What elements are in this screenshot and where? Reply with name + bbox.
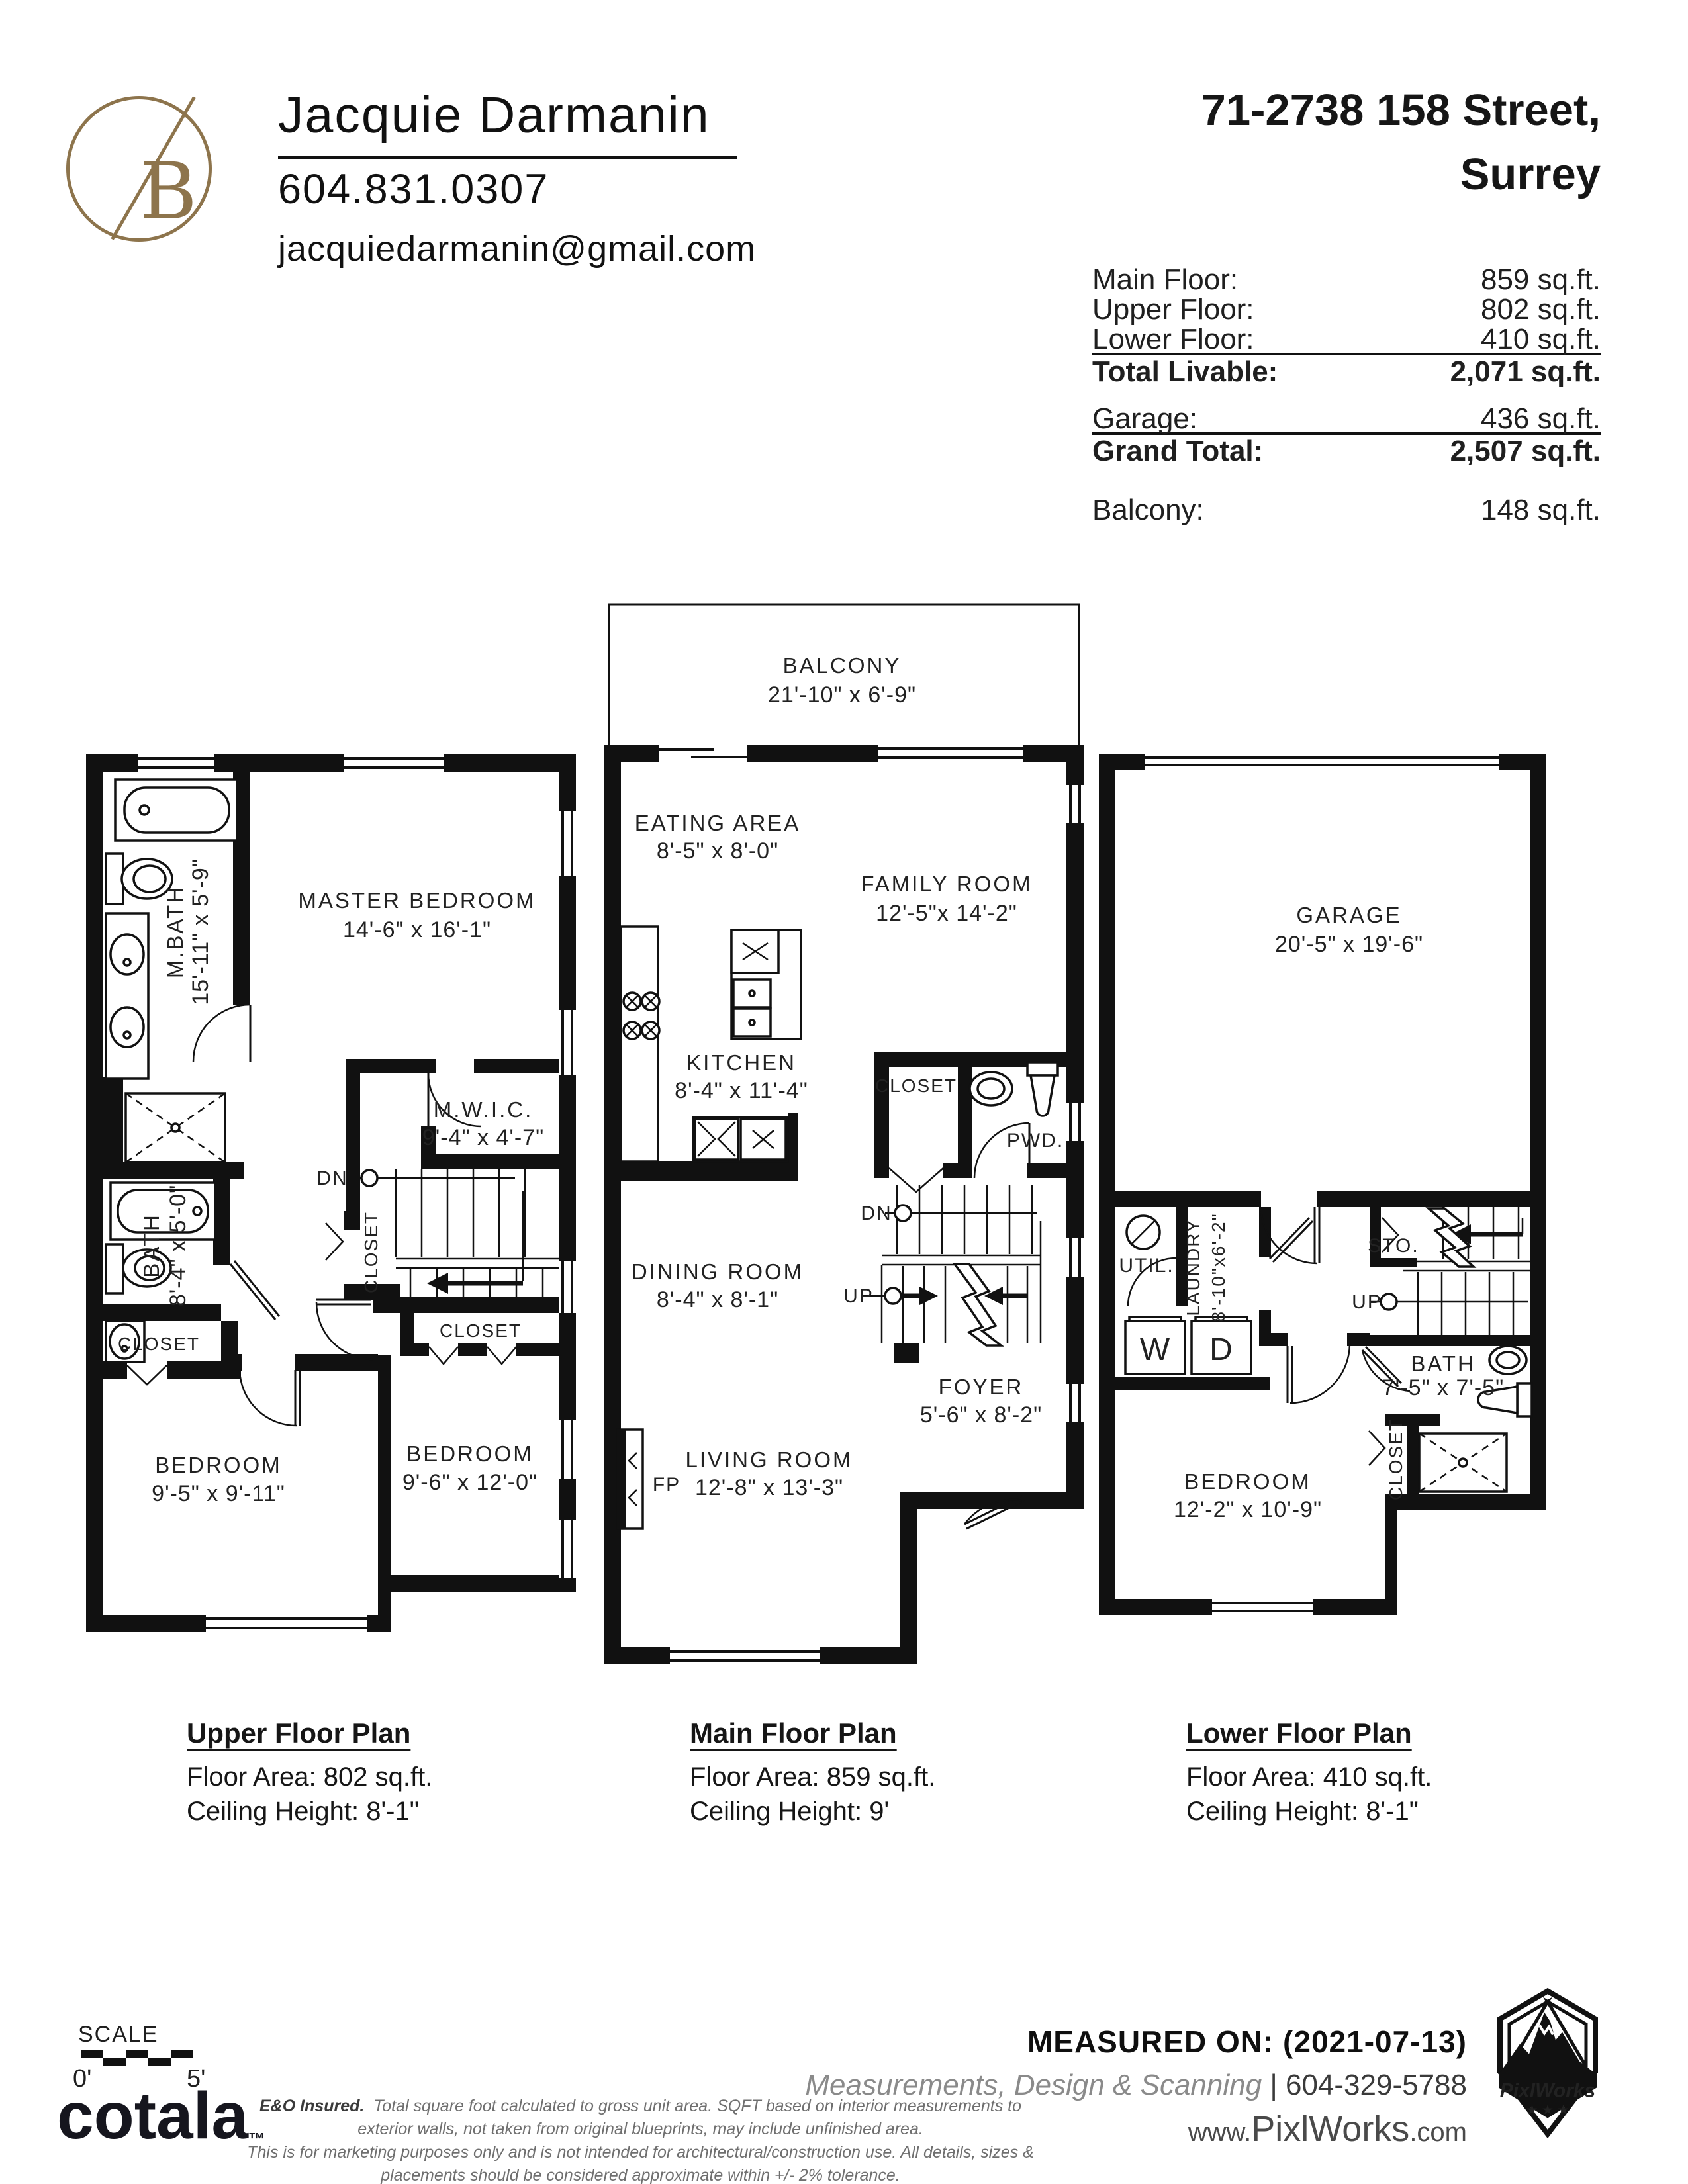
sink-icon [970, 1072, 1012, 1105]
room-dims-living: 12'-8" x 13'-3" [695, 1475, 843, 1500]
stair-label-dn: DN [316, 1167, 348, 1189]
window [559, 1416, 576, 1482]
stair-arrow-icon [919, 1287, 938, 1305]
caption-ceiling: Ceiling Height: 9' [690, 1794, 935, 1829]
room-label-laundry: LAUNDRY [1183, 1218, 1203, 1316]
main-floor-plan: BALCONY 21'-10" x 6'-9" EATING AREA 8'-5… [604, 599, 1084, 1668]
room-label-closet: CLOSET [875, 1075, 957, 1096]
disclaimer-bold: E&O Insured. [259, 2097, 364, 2115]
value: 802 sq.ft. [1481, 293, 1601, 326]
room-dims-bedroom: 12'-2" x 10'-9" [1174, 1497, 1322, 1522]
services-line: Measurements, Design & Scanning | 604-32… [794, 2069, 1467, 2102]
room-label-garage: GARAGE [1296, 903, 1401, 927]
stair-label-dn: DN [861, 1203, 892, 1224]
badge-stars: ★ ★ ★ [1526, 2103, 1570, 2118]
caption-area: Floor Area: 802 sq.ft. [187, 1760, 432, 1794]
room-dims-mbath: 15'-11" x 5'-9" [188, 858, 213, 1005]
room-label-util: UTIL. [1119, 1255, 1174, 1277]
room-label-bath: BATH [139, 1213, 164, 1278]
closet-door-chevron [487, 1347, 516, 1364]
row-total-livable: Total Livable: 2,071 sq.ft. [1092, 355, 1601, 385]
closet-door-chevron [1369, 1431, 1385, 1465]
room-label-closet: CLOSET [1385, 1418, 1406, 1500]
website: www.PixlWorks.com [794, 2109, 1467, 2150]
window [559, 807, 576, 880]
room-dims-bath: 7'-5" x 7'-5" [1382, 1375, 1504, 1400]
window [134, 754, 218, 772]
window [666, 1647, 823, 1664]
caption-title: Upper Floor Plan [187, 1715, 432, 1752]
room-label-foyer: FOYER [939, 1375, 1024, 1399]
label: Main Floor: [1092, 263, 1238, 296]
brand-logo-circle-icon: B [66, 96, 212, 242]
room-dims-family: 12'-5"x 14'-2" [876, 901, 1017, 926]
window [559, 1516, 576, 1582]
room-dims-mwic: 9'-4" x 4'-7" [422, 1125, 544, 1150]
window [202, 1615, 371, 1632]
row-garage: Garage: 436 sq.ft. [1092, 402, 1601, 435]
stair-label-up: UP [843, 1285, 874, 1307]
value: 148 sq.ft. [1481, 494, 1601, 527]
stair-start-icon [895, 1205, 911, 1221]
label: Balcony: [1092, 494, 1204, 527]
caption-title: Lower Floor Plan [1186, 1715, 1432, 1752]
row-grand-total: Grand Total: 2,507 sq.ft. [1092, 435, 1601, 465]
dryer-label: D [1209, 1332, 1233, 1367]
balcony-outline [609, 604, 1079, 754]
room-label-fp: FP [653, 1474, 680, 1496]
value: 859 sq.ft. [1481, 263, 1601, 296]
room-dims-eating: 8'-5" x 8'-0" [657, 839, 778, 864]
window [340, 754, 448, 772]
sink-icon [1489, 1346, 1526, 1374]
room-label-closet: CLOSET [118, 1334, 200, 1354]
label: Total Livable: [1092, 355, 1278, 388]
shower-icon [126, 1093, 225, 1162]
room-dims-bedroom1: 9'-5" x 9'-11" [152, 1481, 285, 1506]
stair-start-icon [361, 1170, 377, 1186]
website-name: PixlWorks [1251, 2109, 1409, 2149]
room-dims-balcony: 21'-10" x 6'-9" [768, 682, 916, 707]
vanity-sinks-icon [106, 913, 148, 1079]
website-tld: .com [1409, 2118, 1467, 2147]
services-phone: 604-329-5788 [1286, 2069, 1467, 2101]
services-sep: | [1270, 2069, 1286, 2101]
agent-email: jacquiedarmanin@gmail.com [278, 228, 756, 269]
closet-door-chevron [127, 1365, 167, 1385]
room-label-balcony: BALCONY [783, 653, 902, 678]
upper-floor-plan: M.BATH 15'-11" x 5'-9" MASTER BEDROOM 14… [86, 754, 576, 1648]
room-label-sto: STO. [1368, 1235, 1419, 1257]
caption-title: Main Floor Plan [690, 1715, 935, 1752]
measured-on: MEASURED ON: (2021-07-13) [794, 2024, 1467, 2060]
address-line2: Surrey [1201, 142, 1601, 206]
room-label-mwic: M.W.I.C. [434, 1097, 534, 1122]
cotala-wordmark: cotala [57, 2079, 248, 2153]
stairs [1370, 1207, 1530, 1335]
stair-start-icon [1381, 1294, 1397, 1310]
bathtub-icon [115, 780, 237, 841]
value: 436 sq.ft. [1481, 402, 1601, 435]
caption-area: Floor Area: 859 sq.ft. [690, 1760, 935, 1794]
room-label-kitchen: KITCHEN [686, 1050, 796, 1075]
room-label-pwd: PWD. [1007, 1130, 1064, 1152]
floorplan-sheet: B Jacquie Darmanin 604.831.0307 jacquied… [0, 0, 1688, 2184]
room-label-closet: CLOSET [440, 1320, 522, 1341]
room-dims-garage: 20'-5" x 19'-6" [1275, 932, 1423, 957]
room-label-bedroom: BEDROOM [1184, 1469, 1311, 1494]
kitchen-sink-counter [693, 1117, 788, 1161]
fireplace-icon [618, 1430, 643, 1529]
utility-icon [1127, 1216, 1160, 1249]
window [1066, 1380, 1084, 1426]
stair-start-icon [885, 1288, 901, 1304]
label: Lower Floor: [1092, 323, 1254, 356]
room-dims-dining: 8'-4" x 8'-1" [657, 1287, 778, 1312]
value: 2,071 sq.ft. [1450, 355, 1601, 388]
room-label-bedroom2: BEDROOM [406, 1441, 534, 1466]
room-label-living: LIVING ROOM [685, 1447, 853, 1472]
room-label-dining: DINING ROOM [632, 1259, 804, 1284]
window [559, 1257, 576, 1317]
sliding-door [655, 745, 751, 762]
closet-door-chevron [429, 1347, 458, 1364]
room-label-family: FAMILY ROOM [861, 872, 1032, 896]
row-upper-floor: Upper Floor: 802 sq.ft. [1092, 293, 1601, 323]
stair-break-icon [955, 1264, 1001, 1345]
row-main-floor: Main Floor: 859 sq.ft. [1092, 263, 1601, 293]
upper-caption: Upper Floor Plan Floor Area: 802 sq.ft. … [187, 1715, 432, 1829]
value: 2,507 sq.ft. [1450, 435, 1601, 468]
room-dims-laundry: 8'-10"x6'-2" [1208, 1212, 1229, 1322]
scale-label: SCALE [78, 2022, 159, 2048]
label: Upper Floor: [1092, 293, 1254, 326]
logo-letter: B [140, 152, 197, 230]
washer-label: W [1140, 1332, 1170, 1367]
room-label-closet: CLOSET [361, 1211, 381, 1293]
kitchen-counter [621, 927, 659, 1161]
kitchen-island [731, 930, 801, 1039]
room-label-bath: BATH [1411, 1351, 1476, 1376]
measure-info: MEASURED ON: (2021-07-13) Measurements, … [794, 2024, 1467, 2150]
lower-caption: Lower Floor Plan Floor Area: 410 sq.ft. … [1186, 1715, 1432, 1829]
room-dims-bedroom2: 9'-6" x 12'-0" [402, 1470, 538, 1495]
room-label-mbath: M.BATH [163, 886, 187, 978]
closet-door-chevron [326, 1223, 343, 1260]
window [1066, 1099, 1084, 1145]
row-balcony: Balcony: 148 sq.ft. [1092, 494, 1601, 523]
toilet-icon [1027, 1062, 1058, 1116]
caption-ceiling: Ceiling Height: 8'-1" [1186, 1794, 1432, 1829]
room-dims-kitchen: 8'-4" x 11'-4" [675, 1078, 808, 1103]
value: 410 sq.ft. [1481, 323, 1601, 356]
window [1066, 781, 1084, 827]
caption-area: Floor Area: 410 sq.ft. [1186, 1760, 1432, 1794]
window [559, 1006, 576, 1079]
main-caption: Main Floor Plan Floor Area: 859 sq.ft. C… [690, 1715, 935, 1829]
window [1208, 1599, 1317, 1615]
pixlworks-badge-icon: PixlWorks ★ ★ ★ [1481, 1985, 1614, 2141]
agent-phone: 604.831.0307 [278, 165, 549, 213]
area-summary: Main Floor: 859 sq.ft. Upper Floor: 802 … [1092, 263, 1601, 523]
garage-door [1140, 754, 1505, 770]
room-label-bedroom1: BEDROOM [155, 1453, 282, 1477]
shower-icon [1419, 1433, 1507, 1492]
address-line1: 71-2738 158 Street, [1201, 78, 1601, 142]
room-dims-bath: 8'-4" x 5'-0" [165, 1185, 191, 1306]
room-dims-foyer: 5'-6" x 8'-2" [920, 1402, 1042, 1428]
caption-ceiling: Ceiling Height: 8'-1" [187, 1794, 432, 1829]
room-dims-master: 14'-6" x 16'-1" [343, 917, 491, 942]
window [874, 745, 1027, 762]
row-lower-floor: Lower Floor: 410 sq.ft. [1092, 323, 1601, 355]
agent-name: Jacquie Darmanin [278, 86, 737, 159]
label: Garage: [1092, 402, 1197, 435]
property-address: 71-2738 158 Street, Surrey [1201, 78, 1601, 206]
toilet-icon [106, 854, 172, 904]
room-label-eating: EATING AREA [635, 811, 801, 835]
room-label-master: MASTER BEDROOM [298, 888, 536, 913]
lower-floor-plan: GARAGE 20'-5" x 19'-6" UTIL. LAUNDRY 8'-… [1099, 754, 1546, 1615]
services-text: Measurements, Design & Scanning [805, 2069, 1262, 2101]
label: Grand Total: [1092, 435, 1263, 468]
window [1066, 1234, 1084, 1281]
badge-wordmark: PixlWorks [1500, 2080, 1596, 2102]
scale-bar-icon [81, 2050, 195, 2068]
stair-label-up: UP [1352, 1291, 1382, 1313]
website-www: www. [1188, 2118, 1252, 2147]
